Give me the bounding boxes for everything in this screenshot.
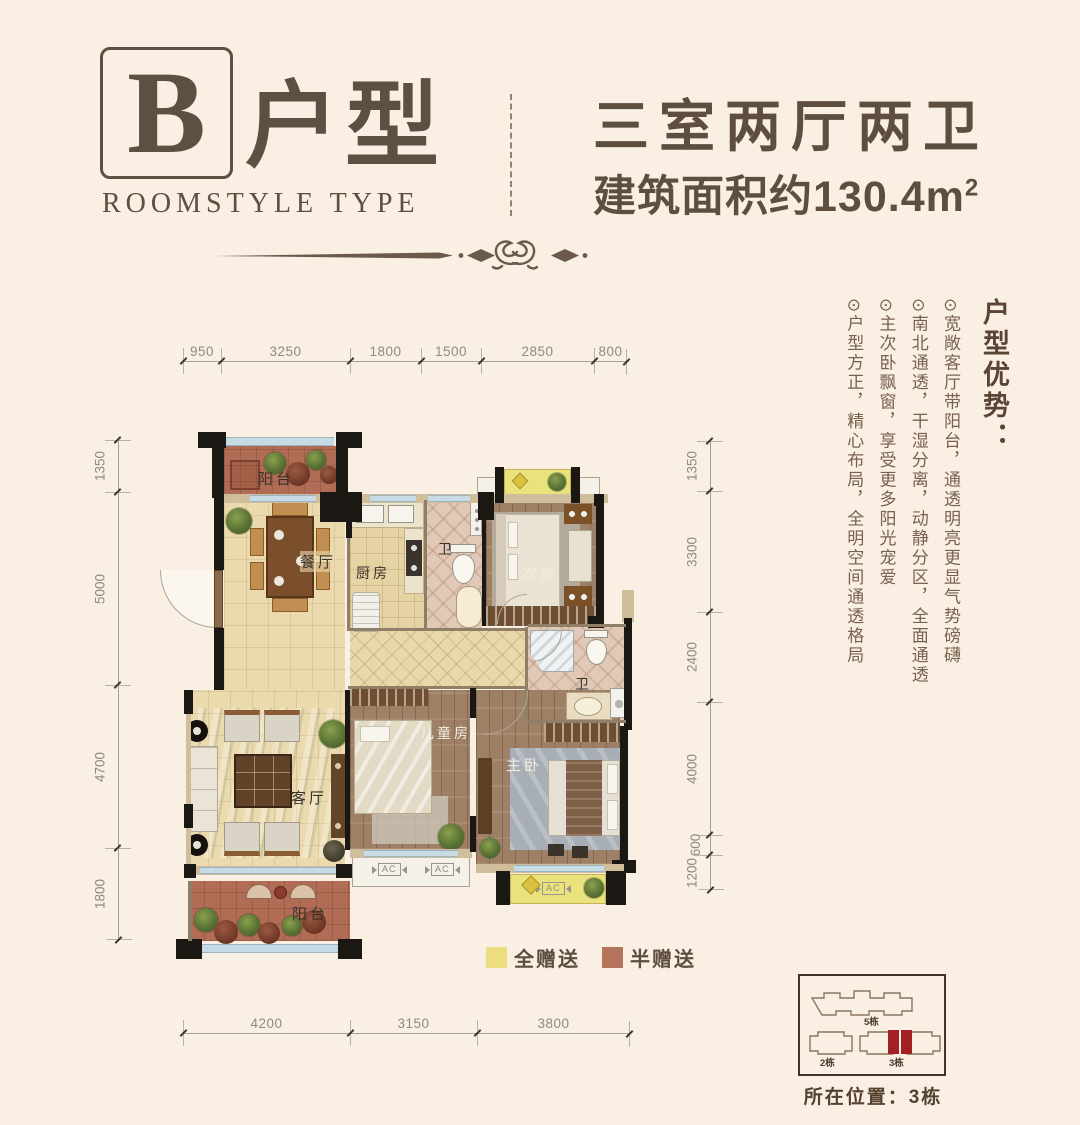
stool	[572, 846, 588, 858]
wall	[424, 500, 427, 631]
dresser	[568, 530, 592, 582]
wall	[495, 467, 504, 503]
pillow	[607, 800, 618, 830]
wall	[470, 688, 476, 718]
wall	[184, 864, 196, 878]
armchair	[224, 822, 260, 856]
label-dining: 餐厅	[300, 551, 336, 572]
plant-dining	[226, 508, 252, 534]
coffee-table	[234, 754, 292, 808]
dining-chair	[250, 562, 264, 590]
advantage-item: ⊙南北通透，干湿分离，动静分区，全面通透	[908, 298, 929, 748]
wall	[571, 467, 580, 503]
pillow	[607, 764, 618, 794]
advantage-item: ⊙户型方正，精心布局，全明空间通透格局	[843, 298, 864, 748]
type-letter-box: B	[100, 47, 233, 179]
plant-living	[319, 720, 347, 748]
pillow	[508, 522, 518, 548]
ac-tag: AC	[536, 882, 571, 895]
wall	[606, 871, 626, 905]
header-divider	[510, 94, 512, 216]
siteplan-building3-label: 3栋	[889, 1055, 904, 1069]
wall	[186, 714, 191, 864]
siteplan-caption: 所在位置：3栋	[788, 1082, 958, 1109]
window	[202, 944, 338, 953]
dim-right: 1350 3300 2400 4000 600 1200	[696, 441, 711, 890]
legend-full-label: 全赠送	[514, 943, 580, 972]
type-label: 户型	[245, 74, 445, 177]
kids-wardrobe	[350, 688, 428, 706]
ac-bracket-icon	[455, 866, 460, 874]
ac-bracket-icon	[566, 885, 571, 893]
wall	[525, 627, 528, 721]
legend: 全赠送 半赠送	[486, 943, 696, 972]
balcony-table	[274, 886, 287, 899]
wall	[188, 881, 192, 941]
ac-bracket-icon	[425, 866, 430, 874]
pillow	[360, 726, 390, 742]
pillow	[508, 554, 518, 580]
area-text: 建筑面积约130.4m2	[593, 162, 979, 224]
ac-bracket-icon	[372, 866, 377, 874]
floorplan-poster: B 户型 ROOMSTYLE TYPE 三室两厅两卫 建筑面积约130.4m2 …	[0, 0, 1080, 1125]
advantages-title: 户型优势：	[975, 298, 1014, 748]
entry-door-arc	[160, 570, 217, 628]
wall	[596, 500, 604, 622]
legend-half-swatch	[602, 947, 623, 968]
shrub	[258, 922, 280, 944]
label-balcony-top: 阳台	[258, 468, 294, 489]
window	[200, 867, 336, 874]
dining-chair	[272, 598, 308, 612]
type-subtitle: ROOMSTYLE TYPE	[102, 188, 420, 220]
legend-full-swatch	[486, 947, 507, 968]
armchair	[264, 710, 300, 742]
ac-tag: AC	[425, 863, 460, 876]
tv-console-master	[478, 758, 492, 834]
bath2-basin	[574, 697, 602, 716]
plant-master	[480, 838, 500, 858]
wall	[336, 864, 352, 878]
wall	[620, 726, 628, 866]
wall	[348, 686, 528, 689]
wall	[346, 500, 352, 538]
label-kitchen: 厨房	[356, 563, 390, 583]
kitchen-sink	[388, 505, 414, 523]
nightstand	[564, 586, 592, 608]
dim-bottom: 4200 3150 3800	[183, 1008, 630, 1034]
advantage-item: ⊙宽敞客厅带阳台，通透明亮更显气势磅礴	[940, 298, 961, 748]
dining-chair	[250, 528, 264, 556]
fridge	[352, 592, 380, 632]
window	[370, 495, 416, 502]
label-balcony-bottom: 阳台	[292, 903, 328, 924]
label-bath2: 卫	[575, 674, 592, 694]
plant-living-dark	[323, 840, 345, 862]
corridor-floor	[350, 631, 526, 687]
wall	[214, 494, 224, 570]
advantages-panel: 户型优势： ⊙宽敞客厅带阳台，通透明亮更显气势磅礴 ⊙南北通透，干湿分离，动静分…	[832, 298, 1014, 748]
wall	[478, 492, 494, 520]
stove	[406, 540, 422, 576]
wall	[184, 690, 193, 714]
label-living: 客厅	[291, 787, 327, 808]
legend-half-label: 半赠送	[630, 943, 696, 972]
master-wardrobe	[544, 722, 620, 742]
dining-plate	[274, 530, 284, 540]
planter-box	[230, 460, 260, 490]
wall	[184, 804, 193, 828]
window	[250, 495, 316, 502]
rooms-title: 三室两厅两卫	[593, 82, 989, 163]
wall	[214, 628, 224, 690]
stool	[548, 844, 564, 856]
wall	[624, 618, 632, 730]
ac-bracket-icon	[402, 866, 407, 874]
nightstand	[564, 504, 592, 524]
dining-chair	[272, 502, 308, 516]
shrub	[238, 914, 260, 936]
toilet	[584, 630, 608, 638]
siteplan-building5-label: 5栋	[864, 1014, 879, 1028]
wall	[338, 939, 362, 959]
label-master: 主卧	[506, 754, 542, 775]
wall	[347, 538, 350, 631]
ac-tag: AC	[372, 863, 407, 876]
window	[364, 850, 458, 857]
entry-door-leaf	[214, 570, 223, 628]
wall	[176, 939, 202, 959]
wall	[528, 624, 626, 627]
wall	[320, 492, 362, 522]
flourish-ornament	[215, 236, 655, 274]
armchair	[264, 822, 300, 856]
shrub	[214, 920, 238, 944]
wall	[212, 446, 224, 498]
wall	[336, 446, 348, 498]
type-letter: B	[127, 54, 206, 172]
wall	[345, 690, 350, 850]
armchair	[224, 710, 260, 742]
dim-top: 950 3250 1800 1500 2850 800	[183, 336, 627, 362]
wall	[470, 816, 476, 852]
wall	[528, 720, 626, 723]
window	[514, 865, 604, 872]
dim-left: 1350 5000 4700 1800	[104, 440, 119, 940]
siteplan-building2-label: 2栋	[820, 1055, 835, 1069]
wall	[496, 871, 510, 905]
plant-kids	[438, 824, 464, 850]
bedroom2-headboard	[496, 514, 506, 608]
master-blanket	[566, 760, 602, 836]
tv-console-living	[331, 754, 346, 838]
wall	[482, 500, 486, 626]
label-bath1: 卫	[438, 539, 455, 559]
bathtub	[456, 586, 482, 628]
window	[428, 495, 470, 502]
dining-plate	[274, 576, 284, 586]
label-bedroom2: 次卧	[522, 563, 558, 584]
wall	[348, 628, 528, 631]
advantage-item: ⊙主次卧飘窗，享受更多阳光宠爱	[875, 298, 896, 748]
gift-decor-plant	[548, 473, 566, 491]
window	[226, 437, 334, 446]
gift-decor-plant	[584, 878, 604, 898]
label-kids: 儿童房	[420, 723, 471, 743]
